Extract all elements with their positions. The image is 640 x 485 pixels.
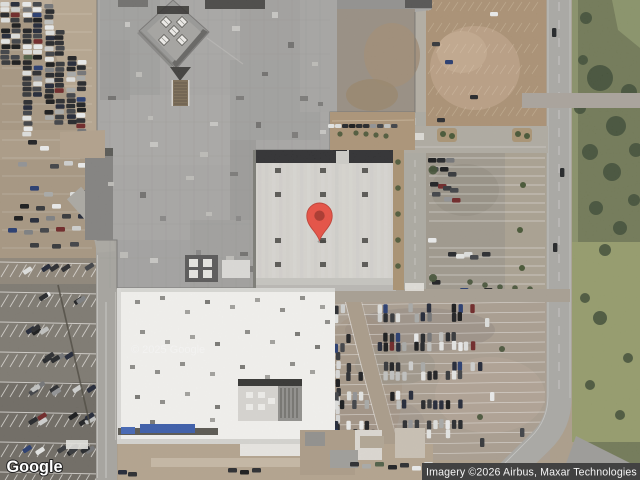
svg-text:Imagery ©2026 Airbus, Maxar Te: Imagery ©2026 Airbus, Maxar Technologies	[426, 467, 637, 479]
svg-text:Google: Google	[7, 458, 63, 476]
